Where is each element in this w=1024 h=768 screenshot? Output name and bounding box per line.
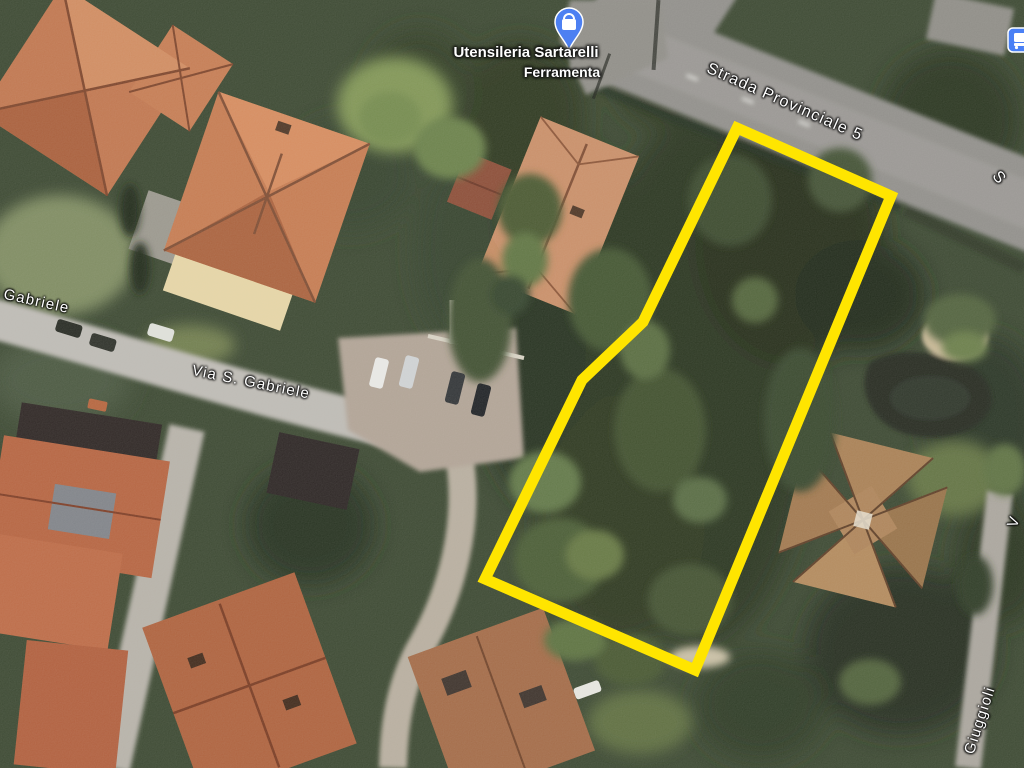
poi-name-label[interactable]: Utensileria Sartarelli: [451, 44, 601, 61]
satellite-map-canvas[interactable]: Strada Provinciale 5 Via S. Gabriele S. …: [0, 0, 1024, 768]
poi-category-label[interactable]: Ferramenta: [506, 64, 618, 80]
bus-stop-icon[interactable]: [1006, 26, 1024, 54]
satellite-grain-texture: [0, 0, 1024, 768]
satellite-imagery: [0, 0, 1024, 768]
